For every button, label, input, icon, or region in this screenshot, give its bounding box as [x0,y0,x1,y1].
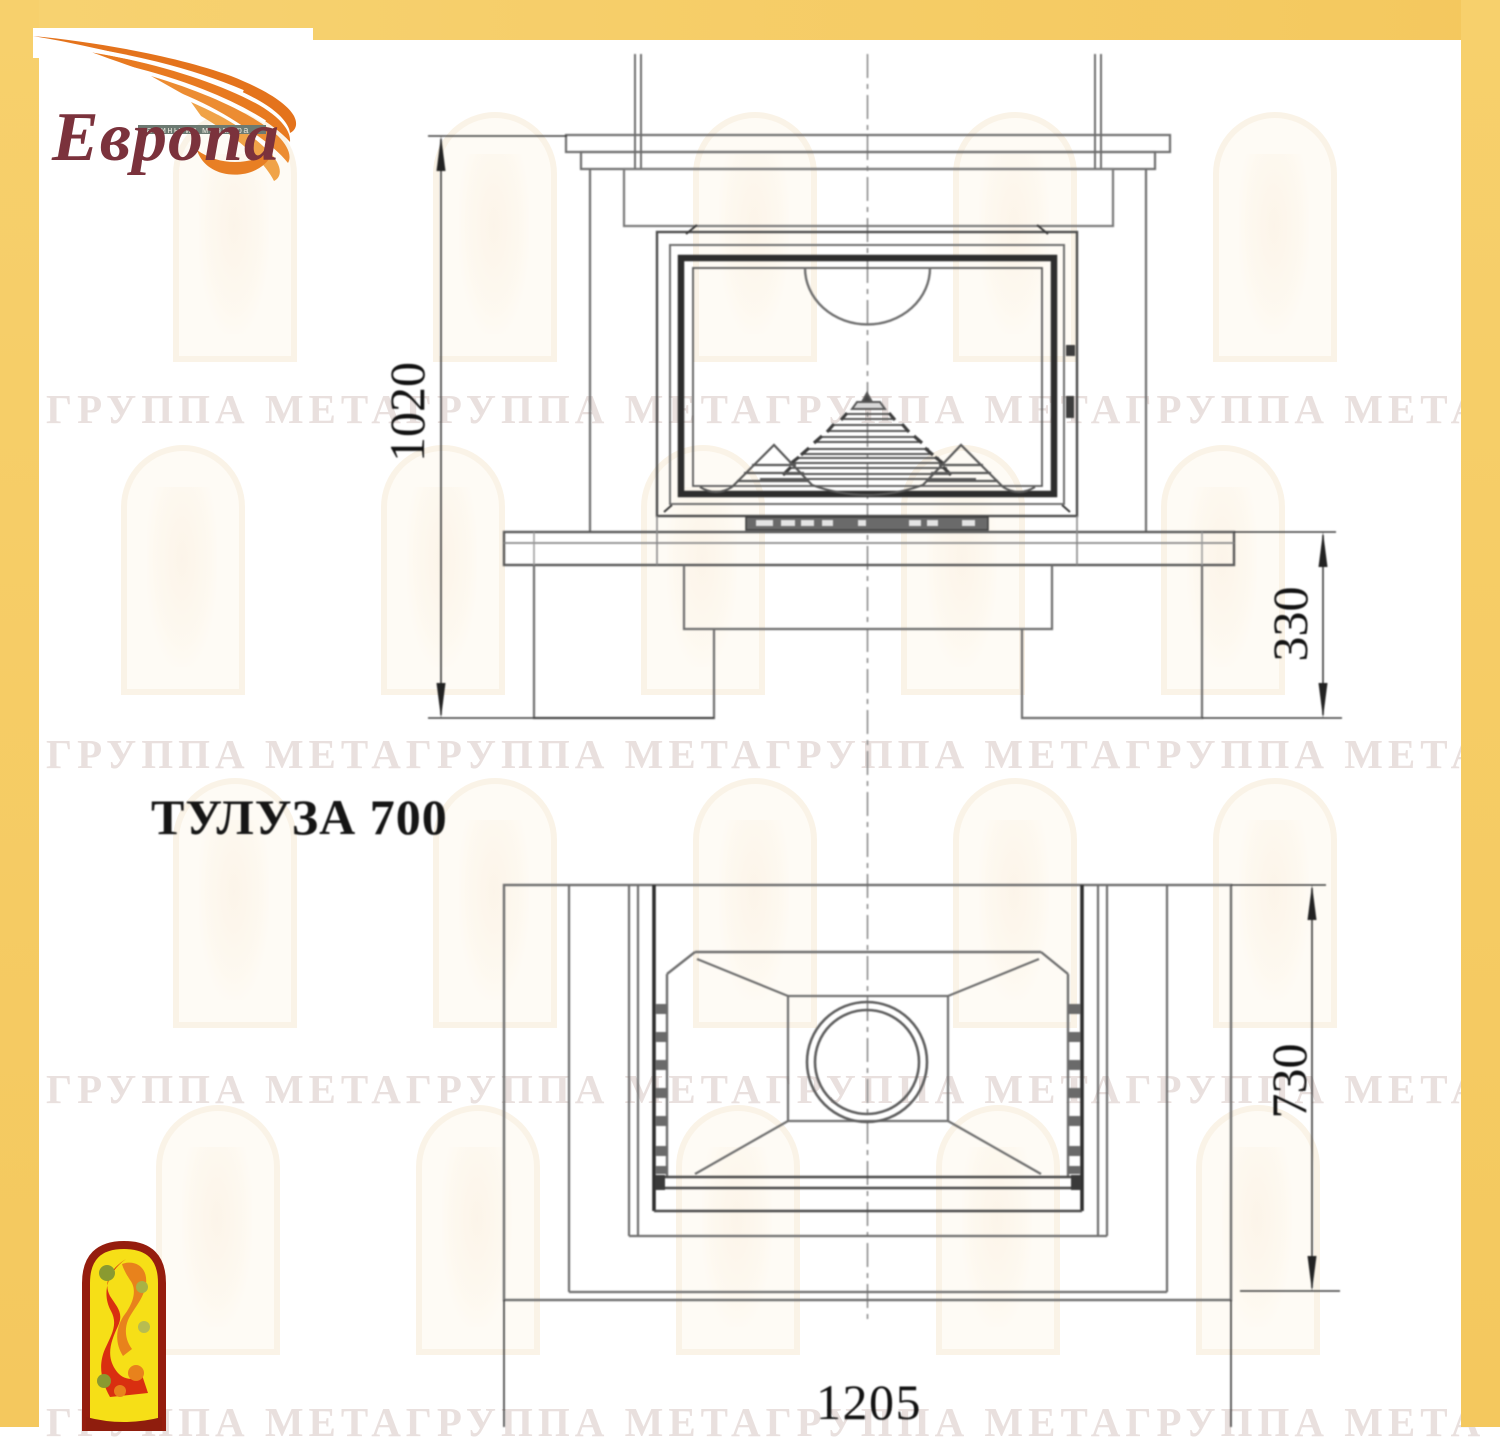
svg-text:ТУЛУЗА 700: ТУЛУЗА 700 [151,789,448,845]
svg-text:1020: 1020 [379,362,435,462]
svg-text:330: 330 [1262,587,1318,662]
svg-text:1205: 1205 [816,1374,922,1427]
svg-text:Европа: Европа [51,99,280,176]
svg-text:730: 730 [1261,1044,1317,1119]
